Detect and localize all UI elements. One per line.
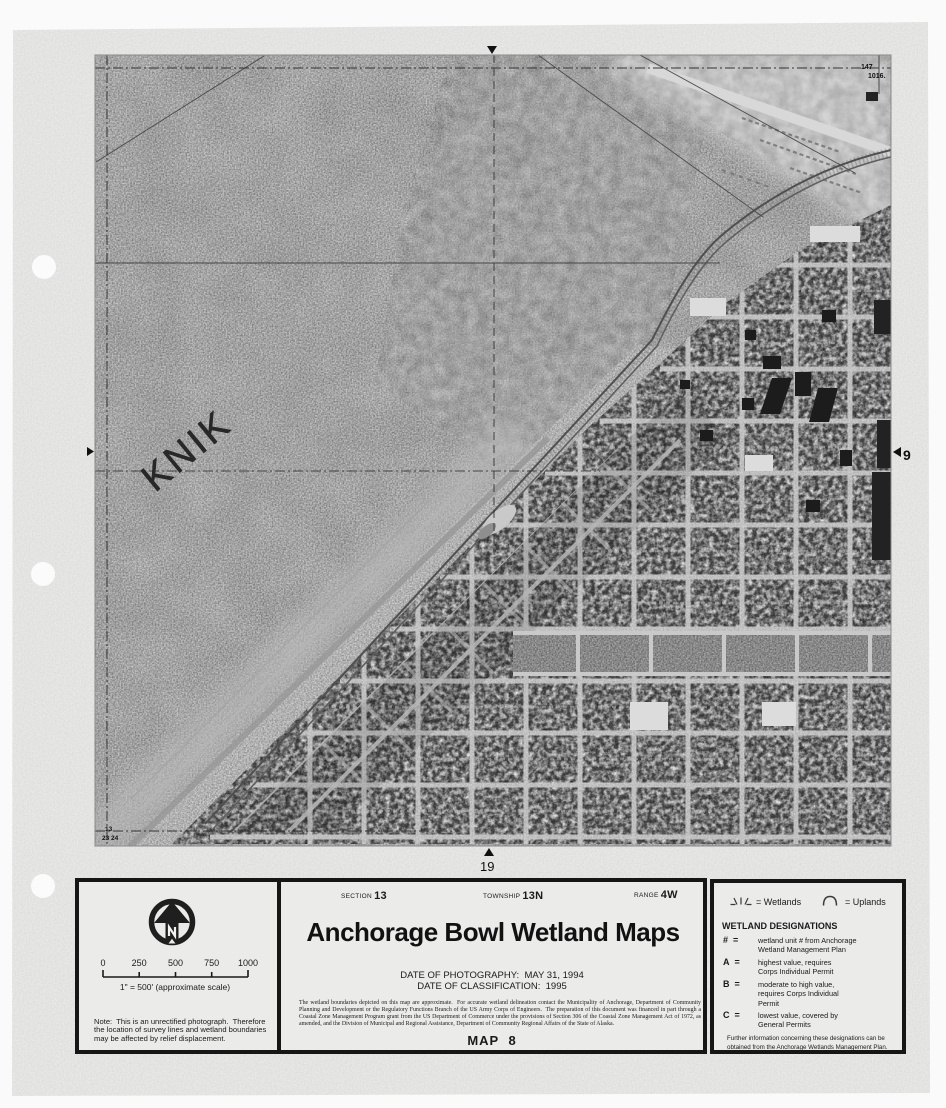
svg-text:13: 13 [105,826,113,833]
svg-text:19: 19 [480,859,494,874]
svg-text:1016.: 1016. [868,73,886,80]
svg-text:1000: 1000 [238,958,258,968]
svg-text:23 24: 23 24 [102,835,119,842]
svg-text:250: 250 [132,958,147,968]
svg-text:147: 147 [861,64,873,71]
svg-text:9: 9 [903,447,911,463]
svg-text:0: 0 [100,958,105,968]
svg-text:750: 750 [204,958,219,968]
svg-text:500: 500 [168,958,183,968]
svg-text:1" = 500' (approximate scale): 1" = 500' (approximate scale) [120,982,230,992]
